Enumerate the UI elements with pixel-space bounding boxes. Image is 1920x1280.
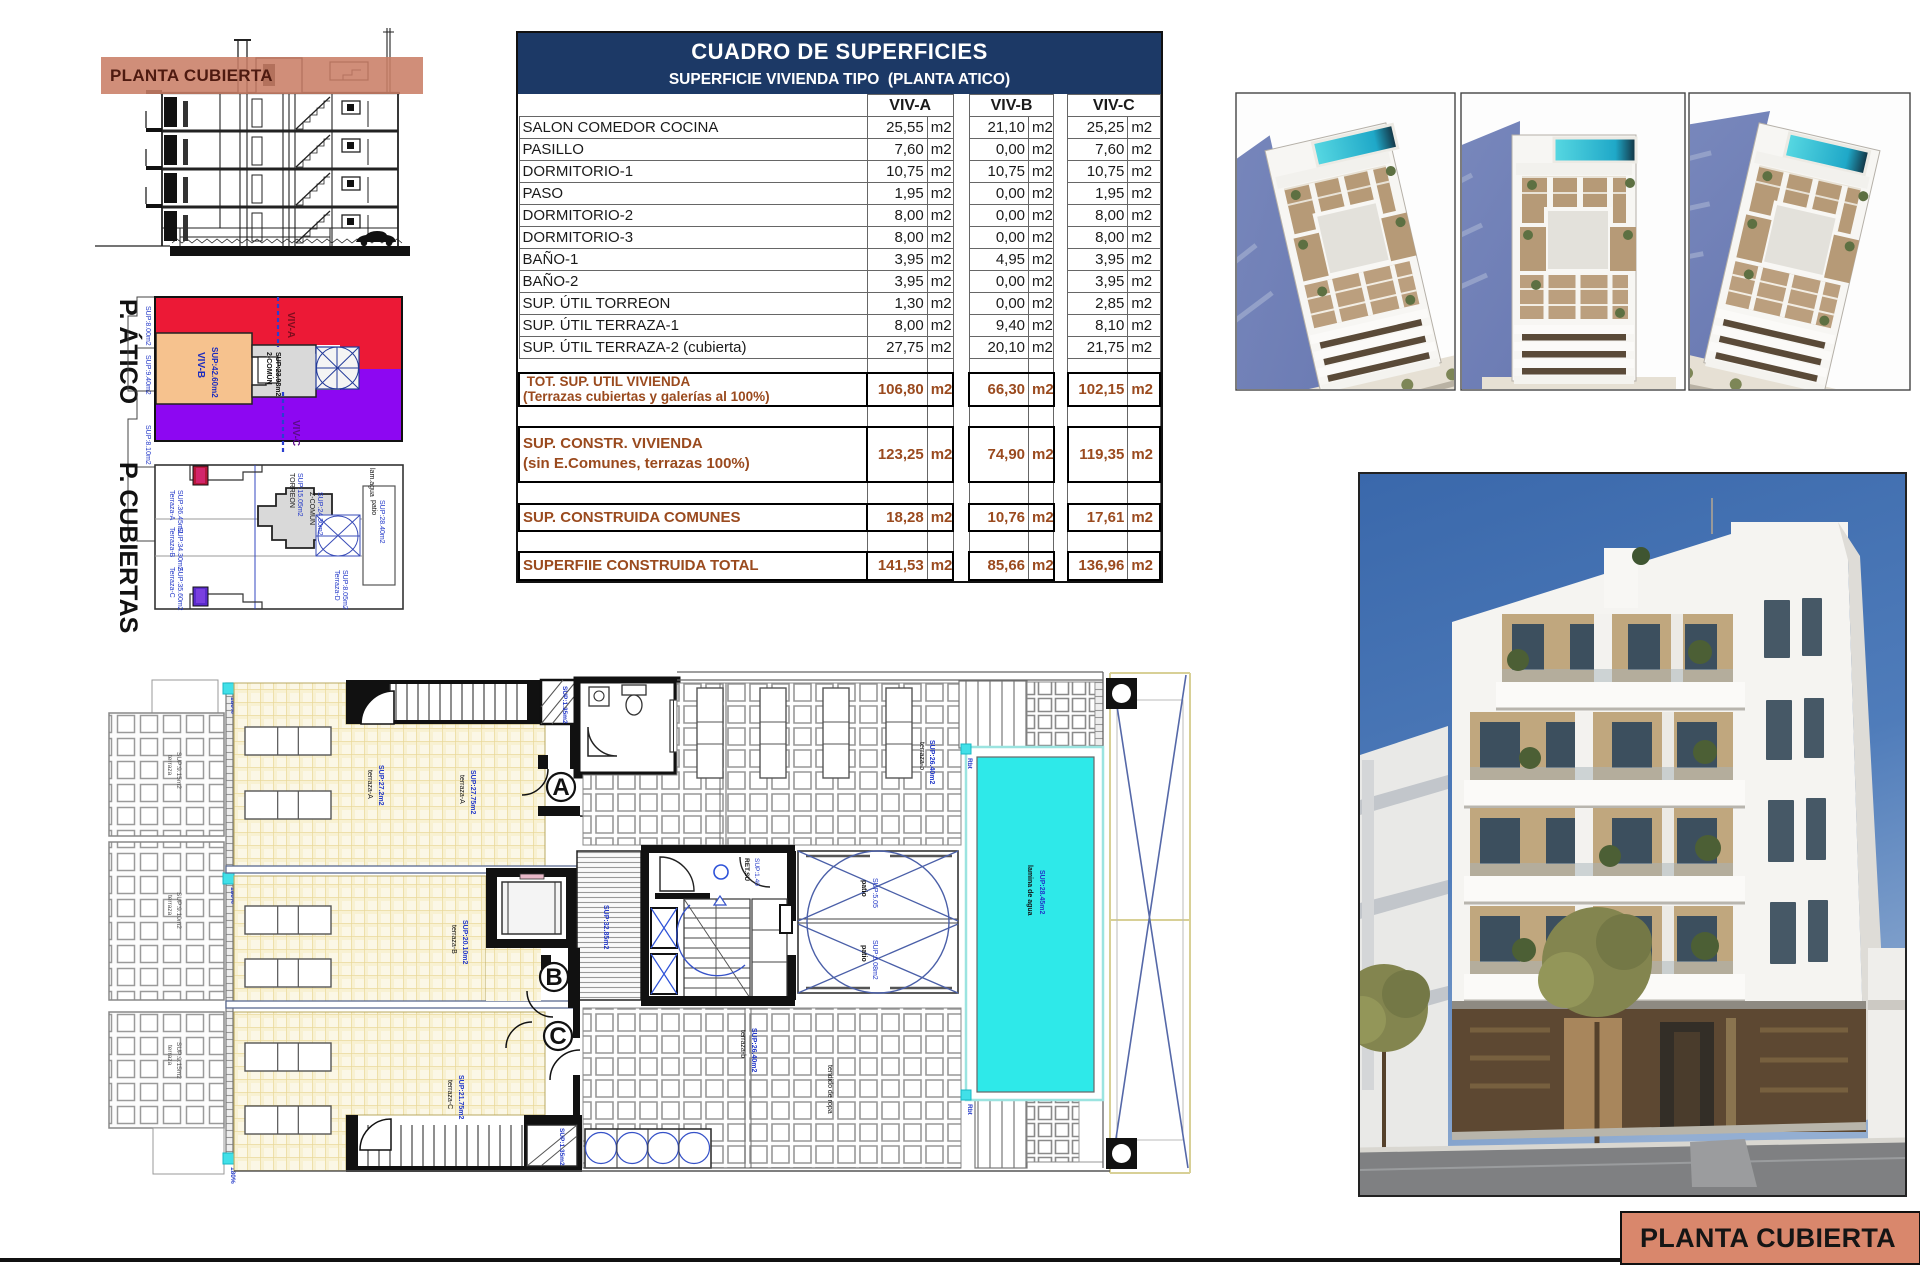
svg-text:Rbt: Rbt [966, 758, 973, 770]
svg-text:Z-COMÚN: Z-COMÚN [308, 492, 317, 525]
svg-text:SUP:8.05m2: SUP:8.05m2 [341, 570, 348, 610]
svg-text:B: B [545, 964, 562, 991]
svg-text:SUP:8.00m2: SUP:8.00m2 [144, 306, 151, 346]
svg-text:SUP:21.75m2: SUP:21.75m2 [457, 1075, 464, 1119]
svg-text:patio: patio [860, 880, 867, 897]
svg-text:RET.SU: RET.SU [743, 858, 750, 881]
svg-text:SUP:28.45m2: SUP:28.45m2 [1038, 870, 1045, 914]
svg-text:SUP:1.40: SUP:1.40 [753, 858, 760, 886]
svg-text:C: C [549, 1023, 566, 1050]
svg-text:Terraza-A: Terraza-A [168, 490, 175, 521]
svg-text:SUP:26.40m2: SUP:26.40m2 [928, 740, 935, 784]
svg-text:terraza-A: terraza-A [366, 770, 373, 799]
svg-text:SUP:35.60m2: SUP:35.60m2 [176, 567, 183, 611]
svg-text:SUP:15.05m2: SUP:15.05m2 [296, 473, 303, 517]
svg-text:SUP:26.40m2: SUP:26.40m2 [750, 1028, 757, 1072]
svg-text:terraza-b: terraza-b [918, 742, 925, 770]
svg-text:A: A [552, 774, 569, 801]
svg-text:Terraza-C: Terraza-C [168, 567, 175, 598]
svg-text:SUP:24.30m2: SUP:24.30m2 [316, 492, 323, 536]
svg-text:terraza-A: terraza-A [458, 775, 465, 804]
svg-text:SUP:32.85m2: SUP:32.85m2 [602, 905, 609, 949]
svg-text:PLANTA CUBIERTA: PLANTA CUBIERTA [110, 66, 273, 85]
svg-text:tendido de ropa: tendido de ropa [826, 1065, 833, 1114]
svg-text:SUP:42.60m2: SUP:42.60m2 [210, 347, 219, 398]
svg-text:SUP:28.40m2: SUP:28.40m2 [378, 500, 385, 544]
svg-text:SUP:9.15m2: SUP:9.15m2 [175, 752, 182, 789]
svg-text:SUP:5.05: SUP:5.05 [871, 878, 878, 908]
svg-text:Terraza-B: Terraza-B [168, 527, 175, 558]
svg-text:Terraza-D: Terraza-D [333, 570, 340, 601]
svg-text:patio: patio [370, 500, 377, 515]
svg-text:SUP:9.40m2: SUP:9.40m2 [144, 355, 151, 395]
svg-text:SUP:27.2m2: SUP:27.2m2 [377, 765, 384, 806]
svg-text:lamina de agua: lamina de agua [1026, 865, 1033, 916]
svg-text:2-COMÚN: 2-COMÚN [265, 352, 274, 385]
svg-text:SUP:23.98m2: SUP:23.98m2 [274, 352, 281, 396]
svg-text:SUP:27.75m2: SUP:27.75m2 [469, 770, 476, 814]
svg-text:SUP:9.15m2: SUP:9.15m2 [175, 1042, 182, 1079]
svg-text:terraza: terraza [166, 1045, 173, 1066]
svg-text:Rbt: Rbt [966, 1104, 973, 1116]
svg-text:SUP:8.10m2: SUP:8.10m2 [144, 425, 151, 465]
svg-text:SUP:20.10m2: SUP:20.10m2 [461, 920, 468, 964]
svg-text:VIV-B: VIV-B [195, 352, 206, 378]
svg-text:terraza-C: terraza-C [446, 1080, 453, 1109]
svg-text:terraza-B: terraza-B [450, 925, 457, 954]
svg-text:PLANTA CUBIERTA: PLANTA CUBIERTA [1640, 1223, 1896, 1253]
svg-text:SUP:6.08m2: SUP:6.08m2 [871, 940, 878, 980]
svg-text:terraza: terraza [166, 895, 173, 916]
svg-text:terraza-b: terraza-b [739, 1030, 746, 1058]
svg-text:SUP:1.35m2: SUP:1.35m2 [558, 1128, 565, 1166]
svg-text:patio: patio [860, 945, 867, 962]
svg-text:P. CUBIERTAS: P. CUBIERTAS [114, 462, 142, 633]
svg-text:SUP:1.35m2: SUP:1.35m2 [561, 686, 568, 724]
svg-text:terraza: terraza [166, 755, 173, 776]
svg-text:lam.agua: lam.agua [368, 468, 375, 497]
svg-text:SUP:34.30m2: SUP:34.30m2 [176, 527, 183, 571]
svg-text:VIV-C: VIV-C [290, 420, 301, 446]
svg-text:TORREON: TORREON [288, 473, 295, 508]
svg-text:VIV-A: VIV-A [285, 312, 296, 338]
svg-text:SUP:9.10m2: SUP:9.10m2 [175, 892, 182, 929]
